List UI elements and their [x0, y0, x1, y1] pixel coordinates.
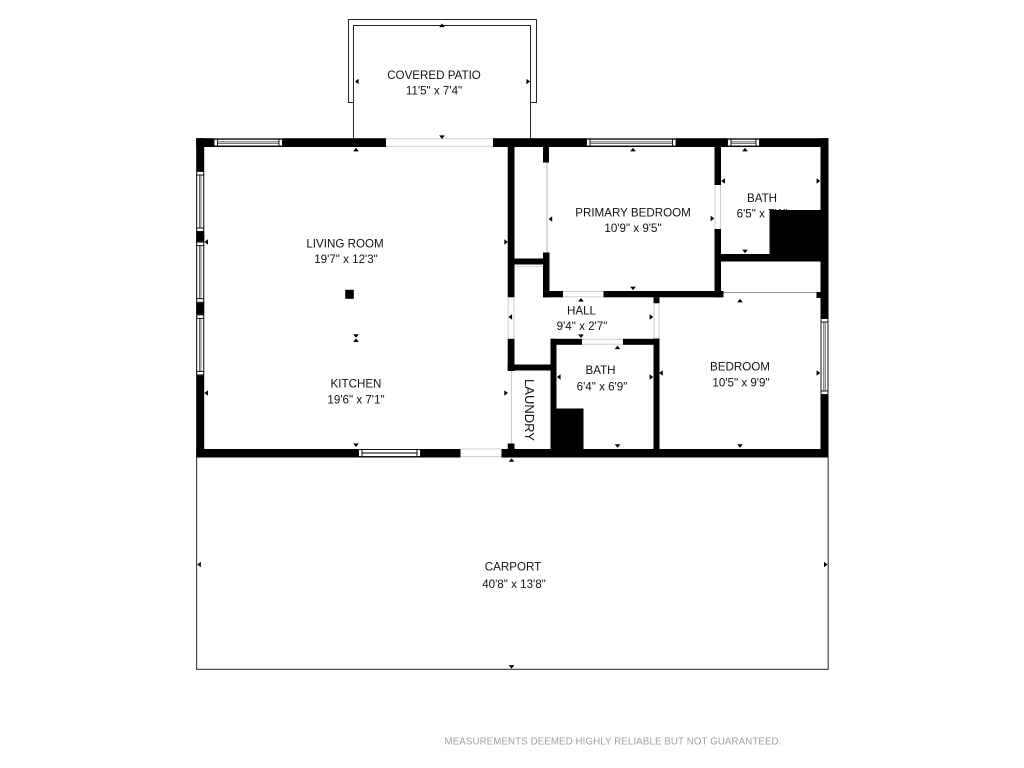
svg-text:HALL: HALL [567, 305, 597, 318]
svg-text:19'7" x 12'3": 19'7" x 12'3" [314, 253, 378, 266]
svg-text:10'9" x 9'5": 10'9" x 9'5" [604, 222, 661, 235]
svg-text:40'8" x 13'8": 40'8" x 13'8" [482, 578, 546, 591]
svg-text:9'4" x 2'7": 9'4" x 2'7" [557, 320, 608, 333]
svg-text:KITCHEN: KITCHEN [331, 378, 382, 391]
svg-text:CARPORT: CARPORT [485, 560, 541, 573]
svg-text:COVERED PATIO: COVERED PATIO [387, 69, 481, 82]
svg-text:19'6" x 7'1": 19'6" x 7'1" [327, 394, 384, 407]
svg-text:BEDROOM: BEDROOM [710, 361, 770, 374]
svg-text:LAUNDRY: LAUNDRY [522, 379, 537, 441]
svg-text:LIVING ROOM: LIVING ROOM [306, 238, 383, 251]
svg-text:10'5" x 9'9": 10'5" x 9'9" [712, 377, 769, 390]
svg-text:MEASUREMENTS DEEMED HIGHLY REL: MEASUREMENTS DEEMED HIGHLY RELIABLE BUT … [445, 736, 782, 747]
svg-text:BATH: BATH [747, 192, 777, 205]
svg-text:6'4" x 6'9": 6'4" x 6'9" [577, 380, 628, 393]
svg-text:BATH: BATH [585, 364, 615, 377]
svg-text:PRIMARY BEDROOM: PRIMARY BEDROOM [575, 206, 691, 219]
svg-text:11'5" x 7'4": 11'5" x 7'4" [406, 84, 462, 97]
